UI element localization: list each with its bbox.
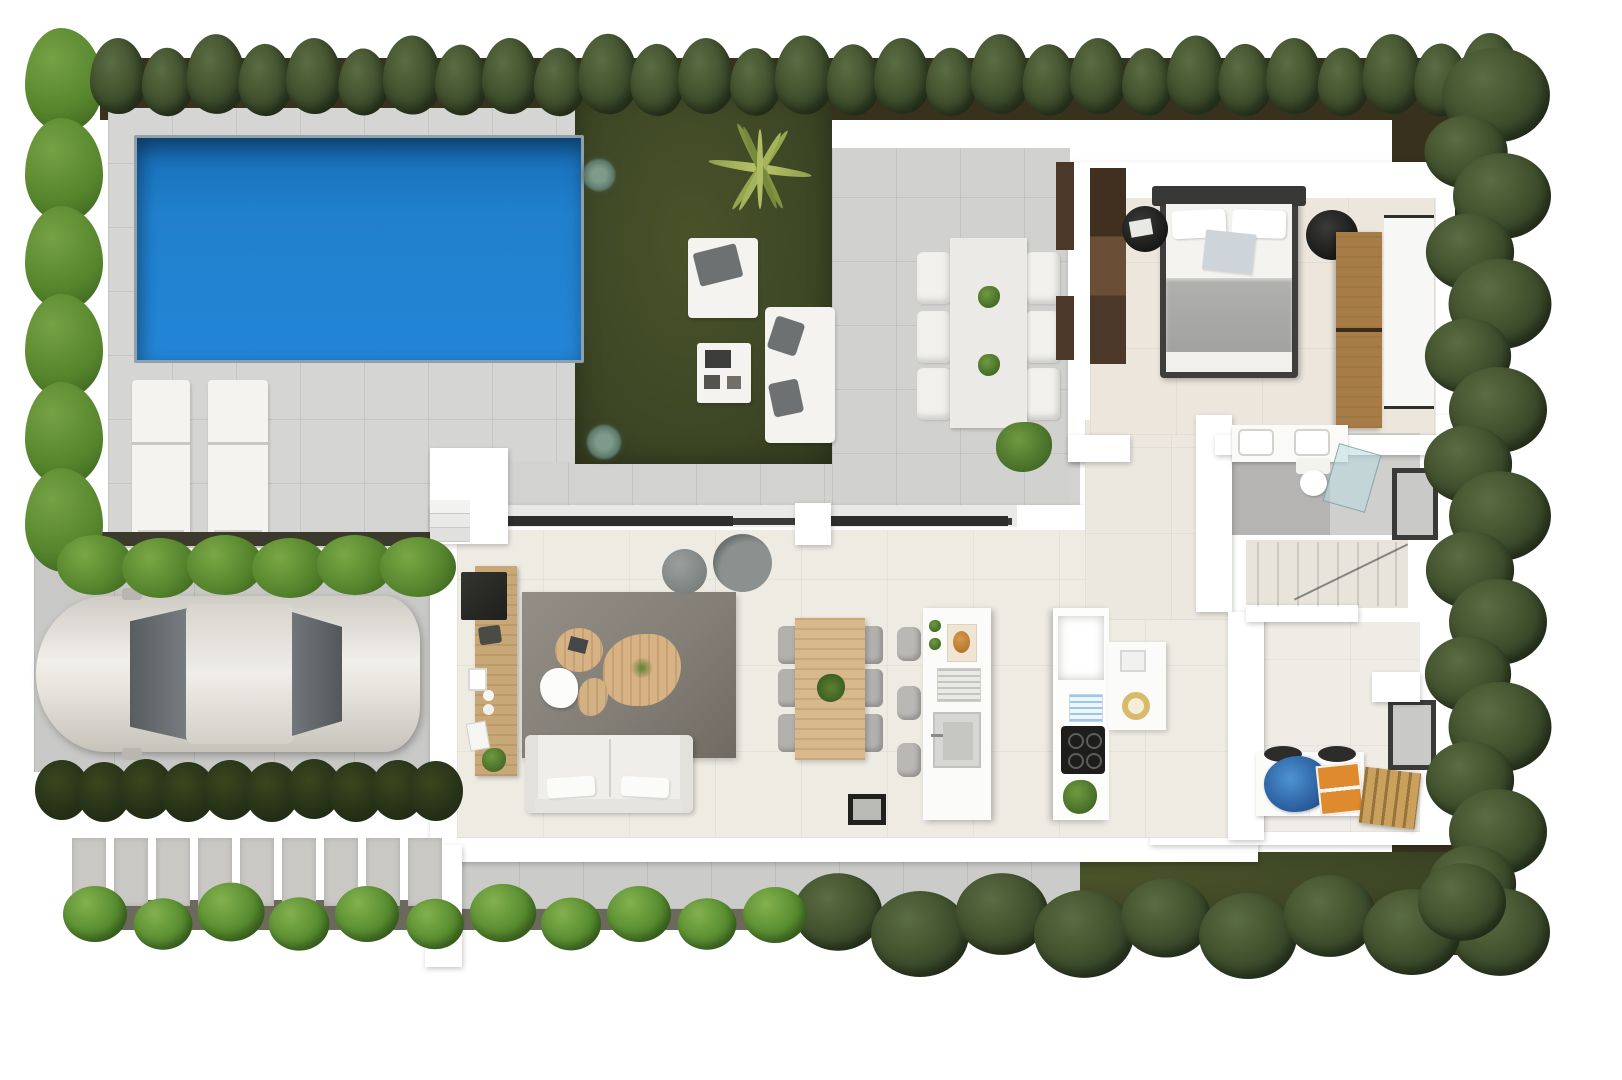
tree — [1283, 875, 1376, 957]
outdoor-chair — [1026, 368, 1060, 420]
tree — [1121, 878, 1211, 957]
bush — [63, 886, 127, 942]
outdoor-chair — [1026, 311, 1060, 363]
hedge-segment — [380, 537, 456, 597]
tree — [1266, 38, 1322, 114]
tree — [827, 44, 880, 115]
notebook — [1129, 218, 1153, 238]
paver-slab — [408, 838, 442, 906]
magazines — [704, 375, 720, 389]
stairs-floor — [1246, 540, 1408, 608]
swimming-pool — [134, 135, 584, 363]
tree — [971, 34, 1030, 114]
stair-tread — [1396, 542, 1397, 606]
toilet-bowl — [1300, 470, 1327, 496]
kitchen-island — [923, 608, 991, 820]
bush — [607, 886, 671, 942]
tree — [794, 873, 882, 950]
table-plant — [978, 354, 1000, 376]
lounger-fold — [132, 442, 190, 445]
decor-vase — [483, 690, 494, 701]
tree — [1167, 35, 1225, 114]
kitchen-side-counter — [1108, 642, 1166, 730]
kitchen-tall-unit — [1053, 608, 1109, 820]
bed-foot-fold — [1166, 352, 1292, 372]
tree — [874, 38, 930, 114]
agave-plant — [586, 424, 622, 460]
bed-throw — [1202, 229, 1256, 274]
sink-basin — [943, 722, 973, 760]
bedroom-bottom-wall — [1068, 435, 1130, 462]
orange-box — [1316, 762, 1365, 816]
wooden-crate — [1359, 767, 1421, 829]
tree — [678, 38, 734, 114]
bush — [134, 898, 193, 950]
car-roof — [186, 604, 294, 744]
island-herb — [929, 620, 941, 632]
decor-frame — [468, 668, 487, 691]
tree — [775, 35, 833, 114]
bedroom-closet — [1090, 168, 1126, 364]
magazines — [705, 350, 731, 368]
counter-sink — [1120, 650, 1146, 672]
stair-tread — [1258, 542, 1259, 606]
tree — [238, 44, 291, 116]
glass-wall-pillar — [795, 503, 831, 545]
bush — [406, 899, 464, 949]
bread — [953, 631, 970, 653]
cutting-board — [947, 624, 977, 662]
hedge-segment — [409, 761, 463, 821]
bedroom-wall-accent — [1056, 296, 1074, 360]
fridge — [1058, 616, 1104, 680]
sofa-pillow — [621, 776, 670, 798]
pouf — [662, 549, 707, 594]
car-rear-window — [292, 612, 342, 736]
fruit-bowl — [1122, 692, 1150, 720]
decor-objects — [478, 625, 502, 646]
car-mirror — [122, 748, 142, 760]
bush — [269, 897, 330, 950]
bar-stool — [897, 743, 921, 777]
stair-tread — [1378, 542, 1379, 606]
garden-side-table — [697, 343, 751, 403]
tree — [1070, 38, 1126, 114]
tree — [435, 45, 487, 116]
tree — [1218, 44, 1271, 116]
island-sink — [933, 712, 981, 768]
bed — [1160, 190, 1298, 378]
cooktop — [1061, 726, 1105, 774]
table-books — [568, 636, 589, 654]
outdoor-chair — [917, 311, 951, 363]
drying-rack — [937, 668, 981, 702]
bed-duvet — [1166, 278, 1292, 352]
tree — [286, 38, 342, 114]
outdoor-chair — [1026, 252, 1060, 304]
wardrobe-divider — [1336, 328, 1382, 332]
entry-porch — [430, 448, 508, 544]
wardrobe — [1336, 232, 1382, 428]
bedroom-wall-accent — [1056, 162, 1074, 250]
vanity-sink — [1238, 429, 1274, 456]
bar-stool — [897, 627, 921, 661]
coffee-table-white — [540, 668, 578, 708]
sofa-pillow — [766, 315, 805, 357]
bush — [197, 883, 264, 942]
paver-slab — [282, 838, 316, 906]
tree — [90, 38, 146, 114]
utility-window — [1388, 700, 1436, 770]
tree — [1199, 893, 1297, 979]
table-plant — [978, 286, 1000, 308]
sofa-pillow — [546, 775, 595, 798]
bush — [470, 884, 537, 942]
island-herb — [929, 638, 941, 650]
sliding-door-panel — [830, 516, 1008, 526]
bed-headboard — [1152, 186, 1306, 206]
door-mat-frame — [848, 794, 886, 825]
tree — [1023, 44, 1076, 115]
sun-lounger — [132, 380, 190, 544]
utility-top-wall — [1246, 605, 1358, 622]
tree — [1363, 34, 1422, 114]
tree — [1418, 863, 1506, 940]
bush — [678, 898, 737, 950]
tree — [187, 34, 246, 114]
porch-step — [430, 514, 470, 528]
bar-stool — [897, 686, 921, 720]
kitchen-plant — [1063, 780, 1097, 814]
paver-slab — [156, 838, 190, 906]
tv-screen — [461, 572, 507, 620]
sun-lounger — [208, 380, 268, 544]
tree — [482, 38, 538, 114]
sofa-pillow — [768, 378, 804, 417]
outdoor-chair — [917, 368, 951, 420]
garden-lounge-chair — [688, 238, 758, 318]
coffee-table — [555, 628, 603, 672]
stair-tread — [1278, 542, 1279, 606]
dining-centerpiece — [817, 674, 845, 702]
floorplan-scene — [0, 0, 1622, 1080]
stair-tread — [1338, 542, 1339, 606]
sliding-door-panel — [507, 516, 733, 526]
utility-ledge — [1372, 672, 1420, 702]
stair-tread — [1358, 542, 1359, 606]
tree — [630, 44, 683, 116]
tree — [871, 891, 969, 977]
porch-step — [430, 500, 470, 514]
table-plant — [631, 658, 653, 678]
tree — [1034, 890, 1134, 978]
car-windshield — [130, 608, 188, 740]
magazines — [727, 376, 741, 389]
lounger-fold — [208, 442, 268, 445]
dishwasher-panel — [1069, 694, 1103, 722]
chair-cushion — [693, 243, 744, 287]
living-sofa — [525, 735, 693, 813]
outdoor-chair — [917, 252, 951, 304]
bush — [335, 886, 399, 942]
machine-lid — [1318, 746, 1356, 762]
agave-plant — [582, 158, 616, 192]
car — [36, 596, 420, 752]
nightstand — [1122, 206, 1168, 252]
sofa-seat-split — [609, 739, 611, 797]
tree — [383, 35, 441, 114]
bush — [743, 887, 807, 943]
bush — [541, 898, 601, 951]
garden-sofa — [765, 307, 835, 443]
sofa-back — [535, 799, 683, 813]
tree — [578, 34, 637, 115]
dining-table — [795, 618, 865, 760]
outdoor-dining-table — [950, 238, 1027, 428]
stair-tread — [1318, 542, 1319, 606]
vanity-sink — [1294, 429, 1330, 456]
pouf — [713, 534, 772, 592]
